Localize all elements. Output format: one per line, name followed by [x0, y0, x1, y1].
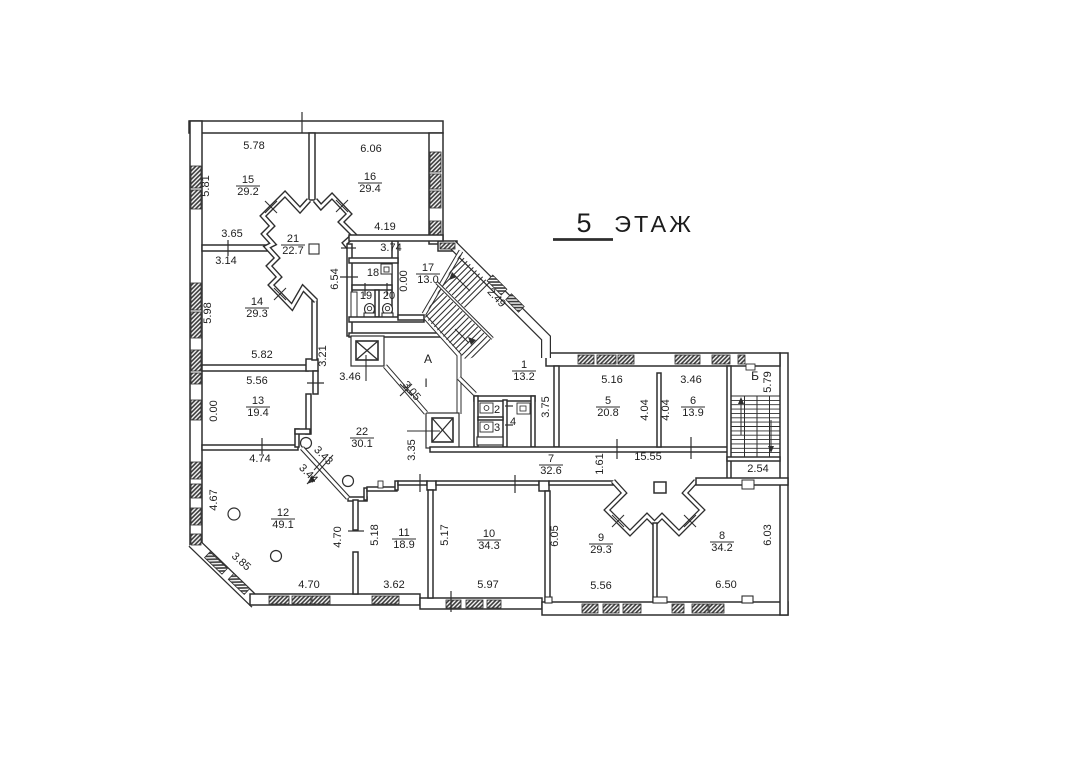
svg-text:20: 20 [383, 290, 395, 302]
svg-text:34.3: 34.3 [478, 540, 499, 552]
svg-text:5.82: 5.82 [251, 349, 272, 361]
svg-text:15: 15 [242, 174, 254, 186]
svg-text:3.75: 3.75 [540, 396, 552, 417]
svg-text:13: 13 [252, 395, 264, 407]
svg-text:30.1: 30.1 [351, 438, 372, 450]
svg-text:13.0: 13.0 [417, 274, 438, 286]
svg-text:20.8: 20.8 [597, 407, 618, 419]
svg-text:5.78: 5.78 [243, 140, 264, 152]
svg-text:29.2: 29.2 [237, 186, 258, 198]
svg-text:14: 14 [251, 296, 263, 308]
svg-text:6.05: 6.05 [549, 525, 561, 546]
svg-text:1: 1 [521, 359, 527, 371]
svg-text:I: I [424, 376, 427, 390]
svg-text:5: 5 [576, 208, 591, 238]
svg-text:4.04: 4.04 [660, 399, 672, 420]
svg-text:5.98: 5.98 [202, 302, 214, 323]
svg-text:3.21: 3.21 [317, 345, 329, 366]
svg-text:3: 3 [494, 422, 500, 434]
svg-text:6.06: 6.06 [360, 143, 381, 155]
svg-text:10: 10 [483, 528, 495, 540]
svg-text:3.46: 3.46 [680, 374, 701, 386]
svg-text:2: 2 [494, 404, 500, 416]
svg-text:34.2: 34.2 [711, 542, 732, 554]
svg-text:5.79: 5.79 [762, 371, 774, 392]
svg-text:3.62: 3.62 [383, 579, 404, 591]
svg-text:3.14: 3.14 [215, 255, 236, 267]
svg-text:5.56: 5.56 [590, 580, 611, 592]
svg-text:49.1: 49.1 [272, 519, 293, 531]
svg-text:6.50: 6.50 [715, 579, 736, 591]
svg-text:Б: Б [751, 369, 759, 383]
svg-text:7: 7 [548, 453, 554, 465]
svg-text:6.03: 6.03 [762, 524, 774, 545]
svg-text:11: 11 [398, 527, 409, 539]
svg-text:5.17: 5.17 [439, 524, 451, 545]
svg-text:5.56: 5.56 [246, 375, 267, 387]
svg-text:13.9: 13.9 [682, 407, 703, 419]
svg-text:16: 16 [364, 171, 376, 183]
svg-text:32.6: 32.6 [540, 465, 561, 477]
svg-text:4.19: 4.19 [374, 221, 395, 233]
svg-text:4.67: 4.67 [208, 489, 220, 510]
svg-text:5.97: 5.97 [477, 579, 498, 591]
svg-text:19.4: 19.4 [247, 407, 268, 419]
svg-text:21: 21 [287, 233, 299, 245]
svg-text:8: 8 [719, 530, 725, 542]
svg-text:2.54: 2.54 [747, 463, 768, 475]
svg-text:29.4: 29.4 [359, 183, 380, 195]
svg-text:3.46: 3.46 [339, 371, 360, 383]
svg-text:4.70: 4.70 [298, 579, 319, 591]
svg-text:18: 18 [367, 267, 379, 279]
svg-text:22.7: 22.7 [282, 245, 303, 257]
svg-text:17: 17 [422, 262, 434, 274]
svg-text:22: 22 [356, 426, 368, 438]
svg-text:13.2: 13.2 [513, 371, 534, 383]
svg-text:3.65: 3.65 [221, 228, 242, 240]
svg-text:ЭТАЖ: ЭТАЖ [614, 211, 694, 237]
svg-text:5.81: 5.81 [200, 175, 212, 196]
svg-text:5: 5 [605, 395, 611, 407]
svg-text:1.61: 1.61 [594, 453, 606, 474]
svg-text:3.74: 3.74 [380, 242, 401, 254]
svg-text:6.54: 6.54 [329, 268, 341, 289]
svg-text:12: 12 [277, 507, 289, 519]
svg-text:29.3: 29.3 [246, 308, 267, 320]
svg-text:0.00: 0.00 [208, 400, 220, 421]
svg-text:15.55: 15.55 [634, 451, 662, 463]
svg-text:18.9: 18.9 [393, 539, 414, 551]
svg-text:19: 19 [360, 290, 372, 302]
svg-text:5.18: 5.18 [369, 524, 381, 545]
svg-text:6: 6 [690, 395, 696, 407]
svg-text:29.3: 29.3 [590, 544, 611, 556]
svg-text:4.74: 4.74 [249, 453, 270, 465]
svg-text:4.70: 4.70 [332, 526, 344, 547]
svg-text:9: 9 [598, 532, 604, 544]
svg-text:3.35: 3.35 [406, 439, 418, 460]
svg-text:А: А [424, 352, 432, 366]
svg-text:5.16: 5.16 [601, 374, 622, 386]
svg-text:0.00: 0.00 [398, 270, 410, 291]
svg-text:4: 4 [510, 416, 516, 428]
svg-text:4.04: 4.04 [639, 399, 651, 420]
